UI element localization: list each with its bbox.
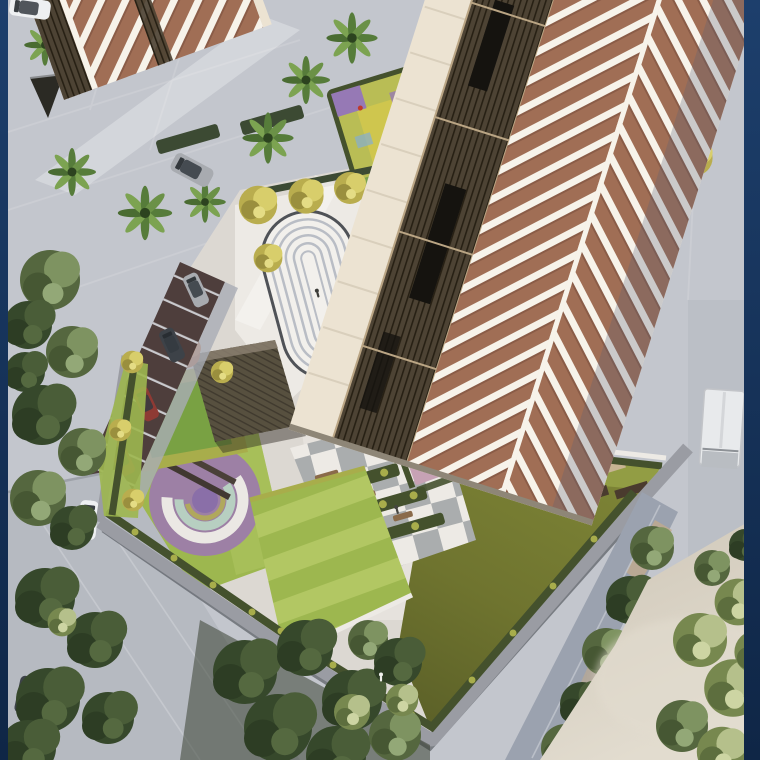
right-border: [744, 0, 760, 760]
aerial-render-canvas: [0, 0, 760, 760]
trees-center-grove: [180, 619, 430, 760]
aerial-render-figure: [0, 0, 760, 760]
left-border: [0, 0, 8, 760]
right-street-van: [699, 389, 744, 470]
